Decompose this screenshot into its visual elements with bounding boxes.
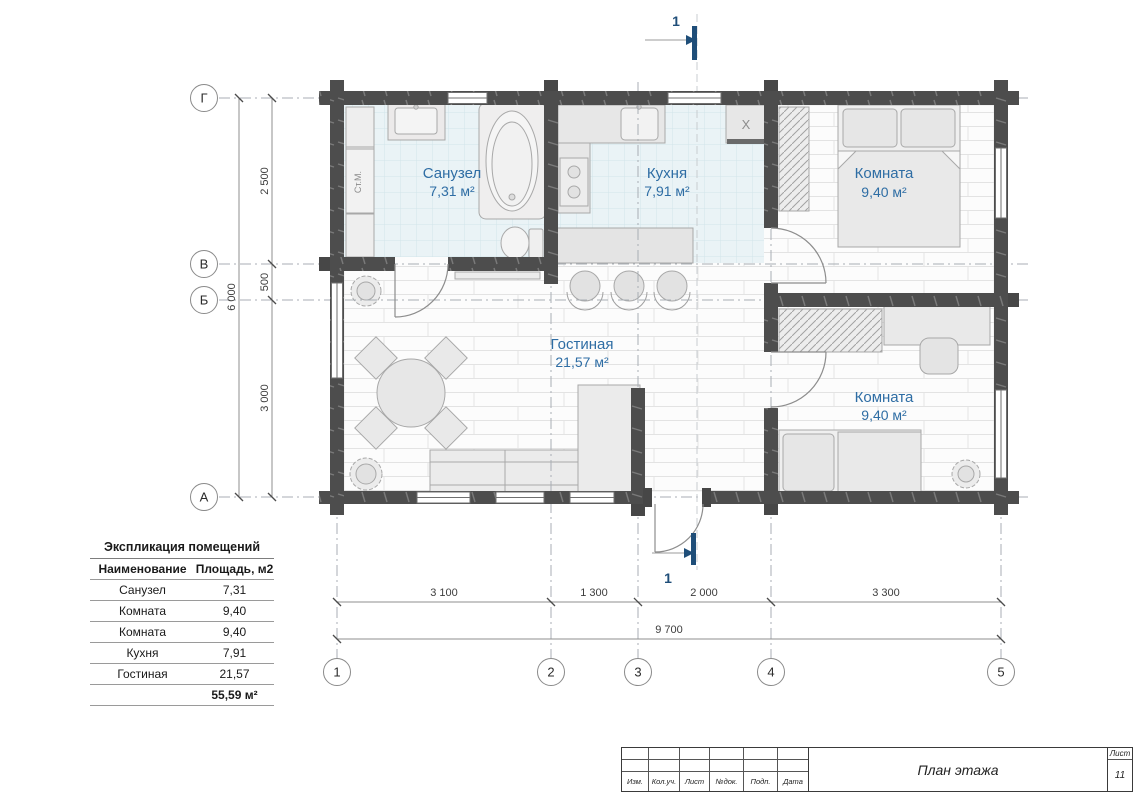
- window-living-bottom-2: [496, 492, 544, 503]
- sheet-label: Лист: [1108, 748, 1132, 760]
- legend-row: Комната 9,40: [90, 622, 274, 643]
- legend-row: Гостиная 21,57: [90, 664, 274, 685]
- room-label-bedroom1: Комната: [855, 165, 914, 182]
- room-area-kitchen: 7,91 м²: [644, 183, 690, 199]
- wall-bath-south-1: [330, 257, 395, 271]
- axis-1: 1: [333, 665, 340, 680]
- wardrobe-bedroom2: [779, 309, 882, 352]
- toilet: [501, 227, 543, 259]
- title-block-stamp-grid: Изм. Кол.уч. Лист №док. Подп. Дата: [622, 748, 809, 791]
- wall-bedrooms-divider: [764, 293, 1019, 307]
- axis-a: А: [200, 490, 209, 505]
- wall-spur-grid3: [631, 388, 645, 504]
- window-kitchen: [668, 93, 721, 104]
- bathroom-sink: [388, 103, 445, 140]
- sheet-number: 11: [1108, 760, 1132, 791]
- dining-table: [377, 359, 445, 427]
- legend-total: 55,59 м²: [195, 685, 274, 706]
- legend-row: Кухня 7,91: [90, 643, 274, 664]
- svg-text:1 300: 1 300: [580, 587, 608, 599]
- axis-2: 2: [547, 665, 554, 680]
- room-area-bedroom2: 9,40 м²: [861, 407, 907, 423]
- section-label-top: 1: [672, 13, 680, 29]
- drawing-sheet: 1 1 Санузел 7,31 м² Кухня 7,91 м² Комнат…: [0, 0, 1139, 800]
- tv-console: [455, 272, 540, 279]
- legend-row: Санузел 7,31: [90, 580, 274, 601]
- legend-total-row: 55,59 м²: [90, 685, 274, 706]
- stamp-cell-koluch: Кол.уч.: [649, 772, 680, 791]
- stamp-cell-ndok: №док.: [710, 772, 744, 791]
- section-label-bottom: 1: [664, 570, 672, 586]
- room-label-living: Гостиная: [551, 336, 614, 353]
- washing-machine-label: Ст.М.: [353, 171, 363, 193]
- bathtub: [479, 103, 546, 219]
- stamp-cell-izm: Изм.: [622, 772, 649, 791]
- window-living-bottom-3: [570, 492, 614, 503]
- svg-text:2 500: 2 500: [259, 167, 271, 195]
- axis-3: 3: [634, 665, 641, 680]
- wall-kitchen-bedroom1: [764, 105, 778, 228]
- axis-v: В: [200, 257, 209, 272]
- kitchen-island: [548, 228, 693, 263]
- axis-5: 5: [997, 665, 1004, 680]
- wardrobe-bedroom1: [779, 107, 809, 211]
- legend-header-row: Наименование Площадь, м2: [90, 559, 274, 580]
- wall-bedroom2-left-1: [764, 307, 778, 352]
- room-label-bedroom2: Комната: [855, 389, 914, 406]
- svg-text:6 000: 6 000: [226, 283, 238, 311]
- single-bed: [779, 430, 921, 495]
- axis-b: Б: [200, 293, 209, 308]
- section-marker-bottom: 1: [652, 533, 696, 586]
- window-living-bottom-1: [417, 492, 470, 503]
- drawing-title: План этажа: [809, 748, 1107, 791]
- legend-title: Экспликация помещений: [90, 538, 274, 559]
- room-label-bathroom: Санузел: [423, 165, 481, 182]
- svg-text:2 000: 2 000: [690, 587, 718, 599]
- plant: [351, 276, 381, 306]
- svg-text:3 000: 3 000: [259, 384, 271, 412]
- room-area-living: 21,57 м²: [555, 354, 609, 370]
- window-bathroom: [448, 93, 487, 104]
- room-label-kitchen: Кухня: [647, 165, 687, 182]
- sheet-number-box: Лист 11: [1107, 748, 1132, 791]
- window-bedroom1: [996, 148, 1007, 218]
- stamp-cell-podp: Подп.: [744, 772, 778, 791]
- svg-text:9 700: 9 700: [655, 624, 683, 636]
- section-marker-top: 1: [645, 13, 697, 60]
- svg-text:500: 500: [259, 273, 271, 291]
- stamp-cell-list: Лист: [680, 772, 710, 791]
- wall-bath-south-2: [448, 257, 558, 271]
- svg-text:3 100: 3 100: [430, 587, 458, 599]
- wall-bottom-right: [702, 491, 1019, 504]
- axis-4: 4: [767, 665, 774, 680]
- legend-col-name: Наименование: [90, 559, 195, 580]
- legend-col-area: Площадь, м2: [195, 559, 274, 580]
- stove: [560, 158, 588, 206]
- fridge-label: X: [742, 117, 751, 132]
- plant: [952, 460, 980, 488]
- stamp-cell-data: Дата: [778, 772, 808, 791]
- window-bedroom2: [996, 390, 1007, 478]
- plant: [350, 458, 382, 490]
- svg-text:3 300: 3 300: [872, 587, 900, 599]
- wall-bedroom2-left-2: [764, 408, 778, 491]
- room-area-bathroom: 7,31 м²: [429, 183, 475, 199]
- room-area-bedroom1: 9,40 м²: [861, 184, 907, 200]
- legend-row: Комната 9,40: [90, 601, 274, 622]
- axis-g: Г: [200, 91, 207, 106]
- desk-chair: [920, 338, 958, 374]
- window-living-left: [332, 283, 343, 378]
- legend-table: Экспликация помещений Наименование Площа…: [90, 538, 274, 706]
- kitchen-sink: [621, 105, 658, 140]
- title-block: Изм. Кол.уч. Лист №док. Подп. Дата План …: [621, 747, 1133, 792]
